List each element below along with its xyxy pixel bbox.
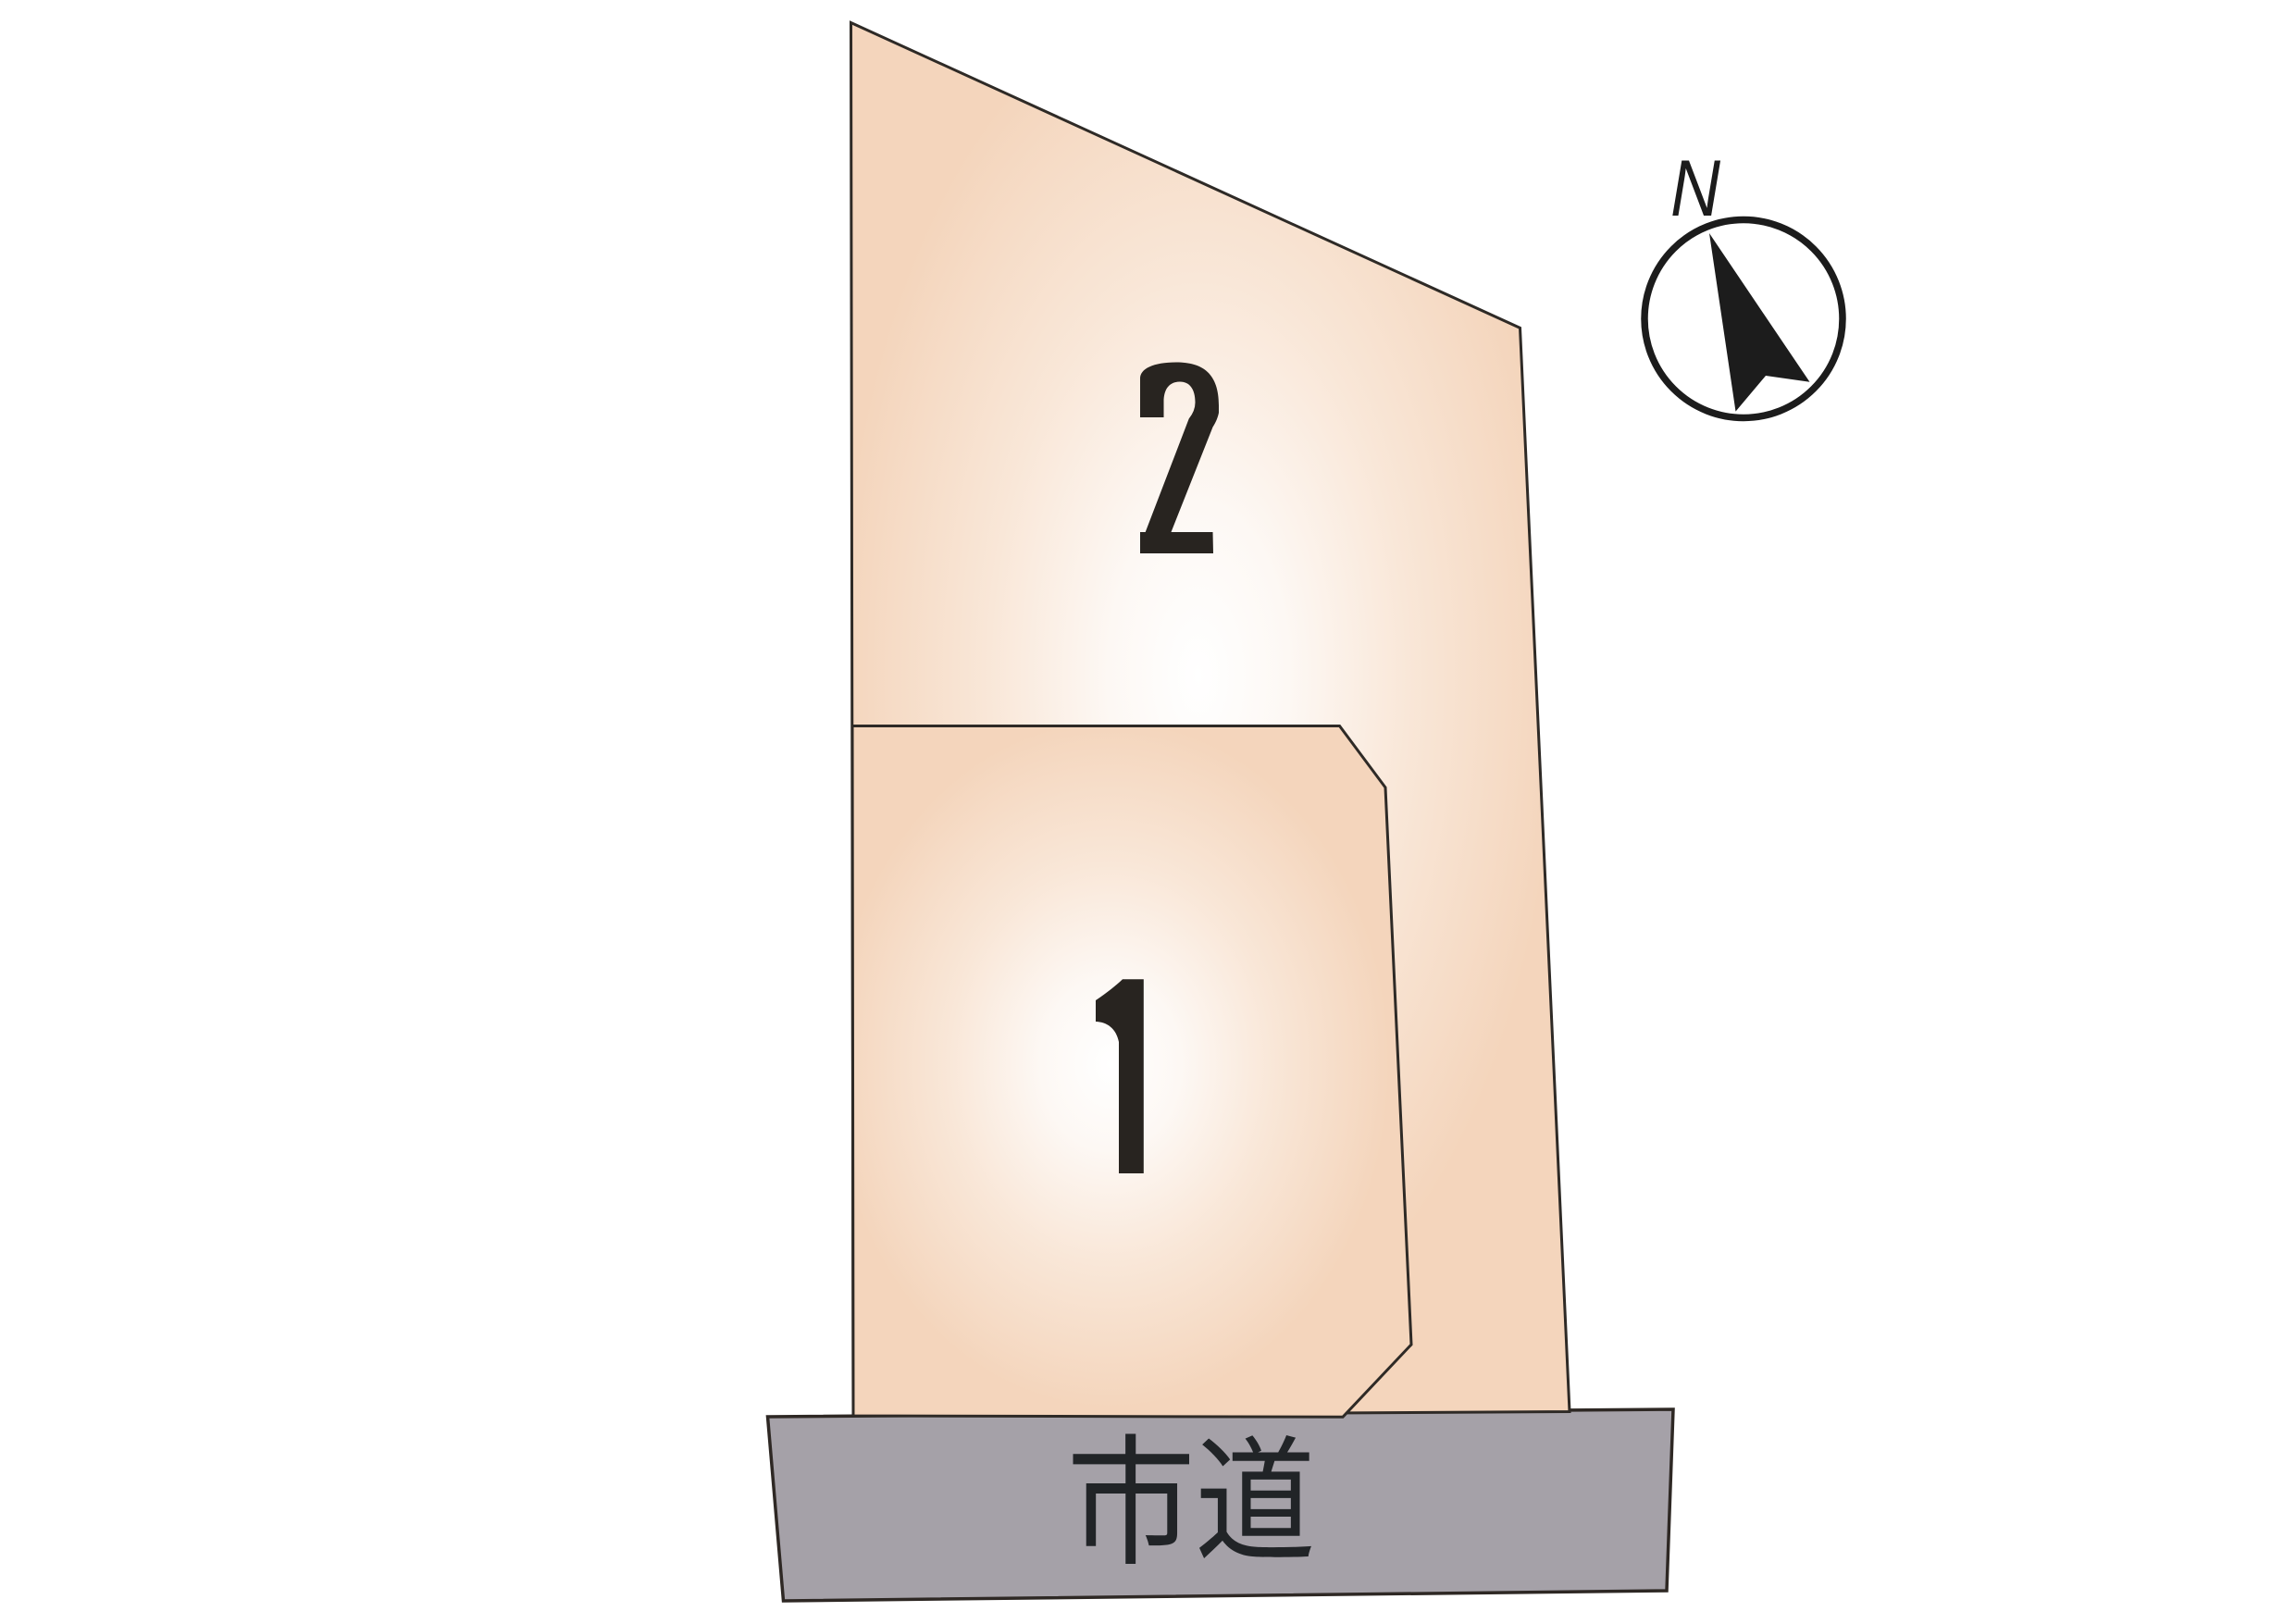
svg-text:N: N bbox=[1670, 144, 1721, 233]
